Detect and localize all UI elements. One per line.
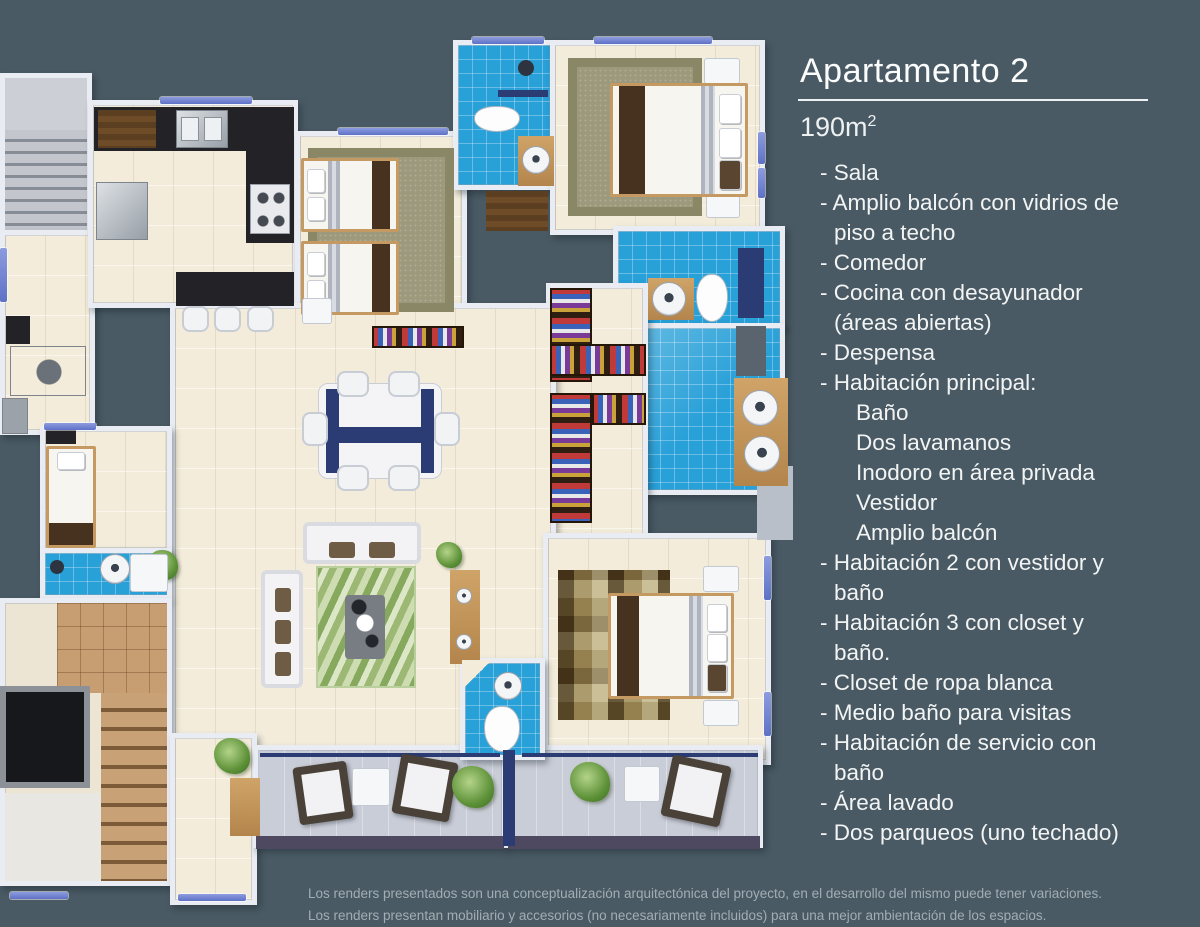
feature-line: Inodoro en área privada [800, 458, 1190, 488]
plant [214, 738, 250, 774]
feature-line: - Habitación de servicio con [800, 728, 1190, 758]
info-panel: Apartamento 2 190m2 - Sala- Amplio balcó… [800, 0, 1180, 921]
closet-rack [592, 393, 646, 425]
coffee-table [345, 595, 385, 659]
feature-line: baño. [800, 638, 1190, 668]
nightstand [703, 700, 739, 726]
kitchen-sink [176, 110, 228, 148]
bath-mat [736, 326, 766, 376]
bed-bedroom2 [608, 593, 734, 699]
pantry-cabinet [486, 191, 548, 231]
round-sink [744, 436, 780, 472]
shower-head-icon [50, 560, 64, 574]
stair-landing [5, 78, 87, 130]
nightstand [704, 58, 740, 84]
toilet [484, 706, 520, 752]
laundry-box [6, 316, 30, 344]
feature-line: (áreas abiertas) [800, 308, 1190, 338]
dining-chair [388, 465, 420, 491]
feature-line: - Amplio balcón con vidrios de [800, 188, 1190, 218]
window [764, 556, 771, 600]
dining-chair [337, 465, 369, 491]
tv-screen [46, 430, 76, 444]
utility-appliance [2, 398, 28, 434]
bed-master [610, 83, 748, 197]
bedside-table [302, 298, 332, 324]
closet-shelf [372, 326, 464, 348]
feature-line: piso a techo [800, 218, 1190, 248]
dining-chair [434, 412, 460, 446]
feature-line: - Medio baño para visitas [800, 698, 1190, 728]
decor-bowl [456, 634, 472, 650]
window [0, 248, 7, 302]
page-title: Apartamento 2 [800, 52, 1030, 91]
side-table [624, 766, 660, 802]
toilet [474, 106, 520, 132]
window [758, 168, 765, 198]
feature-line: - Comedor [800, 248, 1190, 278]
room-stairs-concrete [0, 73, 92, 235]
feature-line: - Habitación principal: [800, 368, 1190, 398]
bar-stool [247, 306, 274, 332]
closet-rack [550, 393, 592, 523]
sofa-horizontal [303, 522, 421, 564]
sofa-vertical [261, 570, 303, 688]
feature-line: baño [800, 758, 1190, 788]
lounge-chair [292, 761, 354, 826]
feature-line: Vestidor [800, 488, 1190, 518]
feature-line: - Habitación 3 con closet y [800, 608, 1190, 638]
terracotta-floor [57, 603, 167, 693]
title-underline [798, 99, 1148, 101]
wc-partition [738, 248, 764, 318]
window [44, 423, 96, 430]
bed-twin [301, 158, 399, 232]
bed-service [46, 446, 96, 548]
balcony-rail [256, 836, 504, 849]
sink-basin [181, 117, 199, 141]
feature-line: - Habitación 2 con vestidor y [800, 548, 1190, 578]
round-sink [652, 282, 686, 316]
window [764, 692, 771, 736]
wood-steps [101, 693, 167, 881]
round-sink [742, 390, 778, 426]
feature-line: - Sala [800, 158, 1190, 188]
nightstand [703, 566, 739, 592]
dining-table-runner [326, 427, 434, 443]
feature-line: baño [800, 578, 1190, 608]
washer [10, 346, 86, 396]
window [10, 892, 68, 899]
dining-chair [337, 371, 369, 397]
kitchen-cabinet [98, 110, 156, 148]
stair-treads [5, 130, 87, 230]
bathtub [130, 554, 168, 592]
balcony-glass-line [260, 753, 500, 757]
disclaimer: Los renders presentados son una conceptu… [308, 883, 1188, 927]
feature-line: Amplio balcón [800, 518, 1190, 548]
fridge [96, 182, 148, 240]
bar-stool [182, 306, 209, 332]
window [160, 97, 252, 104]
kitchen-island [176, 272, 294, 306]
feature-line: - Dos parqueos (uno techado) [800, 818, 1190, 848]
closet-rack [550, 344, 646, 376]
feature-line: - Cocina con desayunador [800, 278, 1190, 308]
floor-plan [0, 0, 795, 921]
feature-line: - Área lavado [800, 788, 1190, 818]
half-bath-corner [462, 660, 492, 690]
shaft-dark [0, 686, 90, 788]
lounge-chair [660, 754, 732, 827]
dining-chair [388, 371, 420, 397]
sink-basin [204, 117, 222, 141]
feature-line: Baño [800, 398, 1190, 428]
round-sink [100, 554, 130, 584]
feature-line: Dos lavamanos [800, 428, 1190, 458]
decor-bowl [456, 588, 472, 604]
disclaimer-line: Los renders presentados son una conceptu… [308, 883, 1188, 905]
window [338, 128, 448, 135]
round-sink [522, 146, 550, 174]
bar-stool [214, 306, 241, 332]
window [758, 132, 765, 164]
white-floor [5, 793, 101, 881]
balcony-rail [508, 836, 760, 849]
feature-line: - Despensa [800, 338, 1190, 368]
disclaimer-line: Los renders presentan mobiliario y acces… [308, 905, 1188, 927]
dining-chair [302, 412, 328, 446]
side-table [352, 768, 390, 806]
nightstand [706, 194, 740, 218]
toilet [696, 274, 728, 322]
lounge-chair [391, 753, 459, 822]
side-table-wood [230, 778, 260, 836]
round-sink [494, 672, 522, 700]
window [178, 894, 246, 901]
window [594, 37, 712, 44]
balcony-glass-line [522, 753, 758, 757]
feature-list: - Sala- Amplio balcón con vidrios depiso… [800, 158, 1190, 848]
shower-partition [498, 90, 548, 97]
feature-line: - Closet de ropa blanca [800, 668, 1190, 698]
stove [250, 184, 290, 234]
area-label: 190m2 [800, 112, 876, 143]
plant [436, 542, 462, 568]
shower-head-icon [518, 60, 534, 76]
balcony-divider [503, 750, 515, 846]
window [472, 37, 544, 44]
